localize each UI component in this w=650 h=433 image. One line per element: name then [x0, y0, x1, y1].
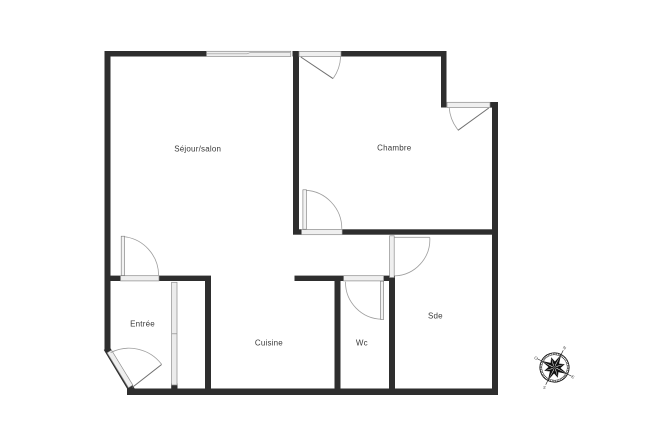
- svg-text:Sde: Sde: [428, 311, 443, 320]
- svg-text:Entrée: Entrée: [130, 319, 155, 328]
- svg-text:Chambre: Chambre: [377, 143, 412, 152]
- svg-text:Wc: Wc: [356, 338, 368, 347]
- svg-text:Cuisine: Cuisine: [255, 339, 283, 348]
- svg-text:Séjour/salon: Séjour/salon: [174, 144, 221, 153]
